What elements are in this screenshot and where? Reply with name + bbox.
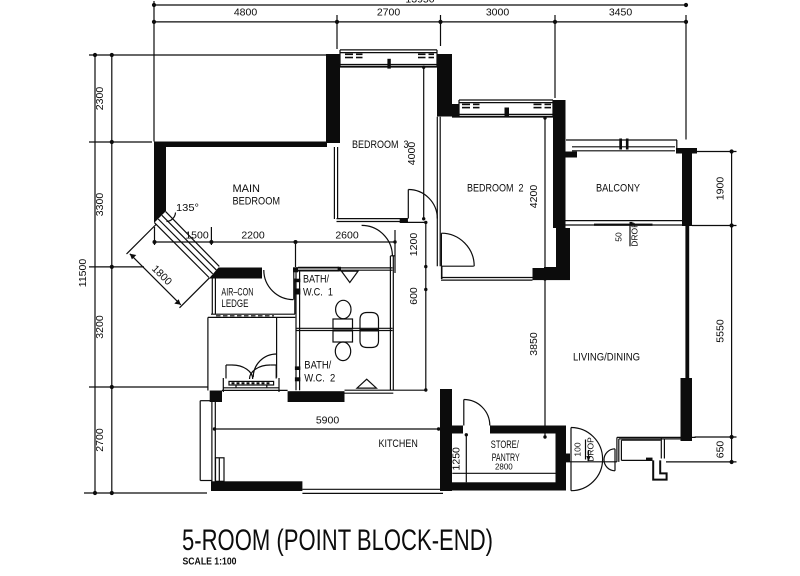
svg-text:1500: 1500 (185, 230, 209, 242)
svg-text:650: 650 (715, 441, 727, 459)
svg-text:AIR–CON: AIR–CON (221, 287, 253, 299)
svg-text:LIVING/DINING: LIVING/DINING (573, 352, 640, 364)
svg-text:1900: 1900 (715, 177, 727, 201)
svg-text:BALCONY: BALCONY (596, 183, 641, 195)
svg-text:BATH/: BATH/ (304, 359, 332, 371)
svg-text:W.C. 2: W.C. 2 (304, 372, 335, 384)
svg-text:2700: 2700 (94, 428, 106, 452)
svg-text:100: 100 (573, 442, 583, 456)
svg-text:DROP: DROP (630, 222, 640, 247)
svg-text:4000: 4000 (406, 142, 418, 166)
svg-text:13950: 13950 (405, 0, 434, 6)
svg-text:BEDROOM 2: BEDROOM 2 (467, 183, 524, 195)
svg-text:5550: 5550 (715, 319, 727, 343)
svg-text:600: 600 (408, 287, 420, 305)
svg-text:BEDROOM 3: BEDROOM 3 (352, 139, 409, 151)
svg-text:3000: 3000 (486, 6, 510, 18)
svg-text:5900: 5900 (316, 415, 340, 427)
svg-text:2600: 2600 (335, 230, 359, 242)
svg-text:LEDGE: LEDGE (221, 298, 248, 310)
svg-text:SCALE 1:100: SCALE 1:100 (183, 557, 237, 568)
svg-text:MAIN: MAIN (233, 183, 261, 195)
svg-text:3200: 3200 (94, 315, 106, 339)
svg-text:3300: 3300 (94, 193, 106, 217)
svg-text:STORE/: STORE/ (491, 439, 520, 451)
svg-text:11500: 11500 (77, 259, 89, 288)
svg-text:BATH/: BATH/ (303, 273, 330, 285)
svg-text:50: 50 (614, 232, 624, 242)
svg-text:3850: 3850 (528, 332, 540, 356)
svg-text:5-ROOM (POINT BLOCK-END): 5-ROOM (POINT BLOCK-END) (182, 524, 493, 557)
svg-text:1200: 1200 (408, 233, 420, 257)
svg-text:3450: 3450 (609, 6, 633, 18)
svg-text:BEDROOM: BEDROOM (233, 196, 281, 208)
svg-text:2300: 2300 (94, 87, 106, 111)
svg-text:1250: 1250 (451, 447, 463, 471)
svg-text:4200: 4200 (528, 185, 540, 209)
svg-text:135°: 135° (176, 202, 199, 214)
svg-text:4800: 4800 (234, 6, 258, 18)
svg-text:DROP: DROP (586, 437, 596, 462)
svg-text:2200: 2200 (241, 230, 265, 242)
svg-text:2700: 2700 (377, 6, 401, 18)
svg-text:KITCHEN: KITCHEN (379, 438, 418, 450)
svg-text:W.C. 1: W.C. 1 (303, 286, 333, 298)
svg-text:2800: 2800 (495, 461, 513, 471)
